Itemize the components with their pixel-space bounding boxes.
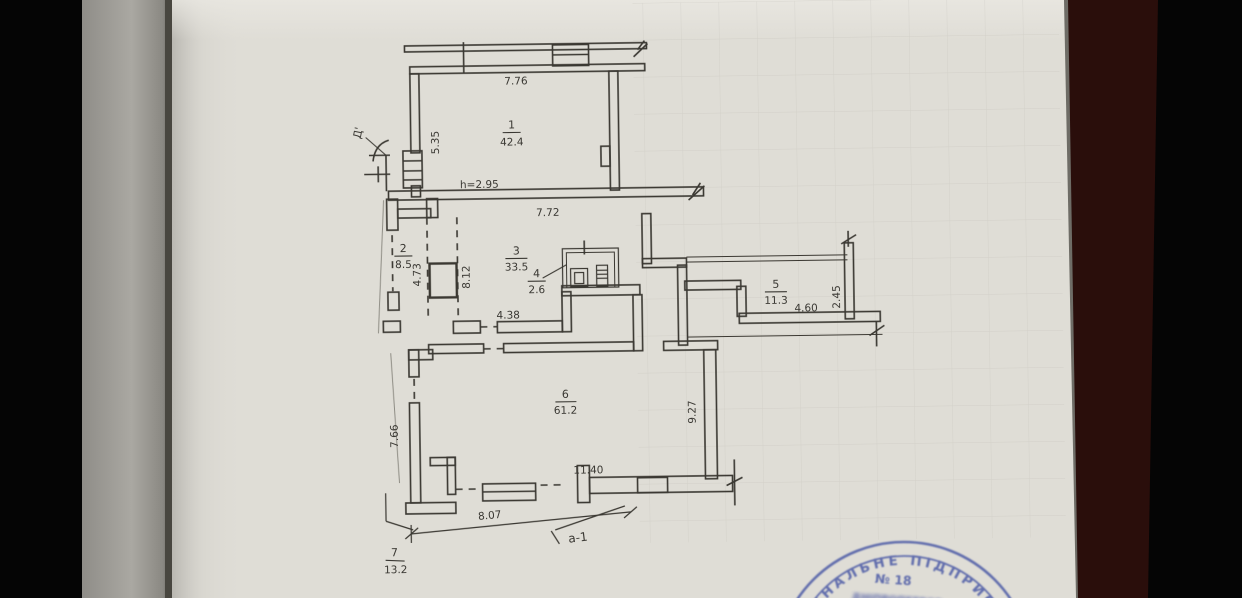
svg-text:6: 6 (562, 388, 569, 401)
dim-room1-top: 7.76 (504, 75, 528, 87)
section-marker: a-1 (567, 530, 588, 546)
dim-room2-v2: 8.12 (461, 265, 473, 289)
svg-text:11.3: 11.3 (764, 295, 788, 307)
faint-grid (633, 0, 1066, 543)
dim-ceiling-height: h=2.95 (460, 179, 499, 192)
dim-room2-v1: 4.73 (411, 263, 423, 287)
svg-text:2: 2 (400, 242, 407, 255)
dim-room6-inner: 11.40 (573, 464, 603, 476)
svg-text:7: 7 (391, 546, 398, 559)
table-surface (1064, 0, 1158, 598)
svg-text:5: 5 (772, 278, 779, 291)
page-crease (165, 0, 173, 598)
dim-room5-width: 4.60 (794, 302, 818, 314)
dim-hall-width: 7.72 (536, 207, 560, 219)
dim-room6-bottom: 8.07 (478, 509, 502, 523)
svg-text:1: 1 (508, 118, 515, 131)
hatched-wall-section (637, 477, 667, 492)
dim-room5-depth: 2.45 (831, 285, 843, 309)
underlying-page-edge (82, 0, 172, 598)
floor-plan-photo-svg: 7.76 5.35 1 42.4 h=2.95 Д' 7.72 2 8.5 4.… (0, 0, 1242, 598)
photo-of-floor-plan: 7.76 5.35 1 42.4 h=2.95 Д' 7.72 2 8.5 4.… (0, 0, 1242, 598)
stamp-number: № 18 (874, 571, 912, 589)
dim-room6-left: 7.66 (389, 424, 401, 448)
svg-text:42.4: 42.4 (500, 136, 524, 148)
svg-text:2.6: 2.6 (528, 284, 545, 296)
dim-room6-right: 9.27 (686, 400, 698, 424)
svg-text:33.5: 33.5 (505, 261, 529, 273)
svg-text:3: 3 (513, 244, 520, 257)
svg-text:8.5: 8.5 (395, 259, 412, 271)
dim-room1-left: 5.35 (430, 131, 442, 155)
dim-hall-bottom: 4.38 (496, 309, 520, 321)
door-marker: Д' (351, 126, 366, 140)
svg-text:61.2: 61.2 (554, 405, 578, 417)
svg-text:13.2: 13.2 (384, 564, 408, 576)
svg-text:4: 4 (533, 267, 540, 280)
